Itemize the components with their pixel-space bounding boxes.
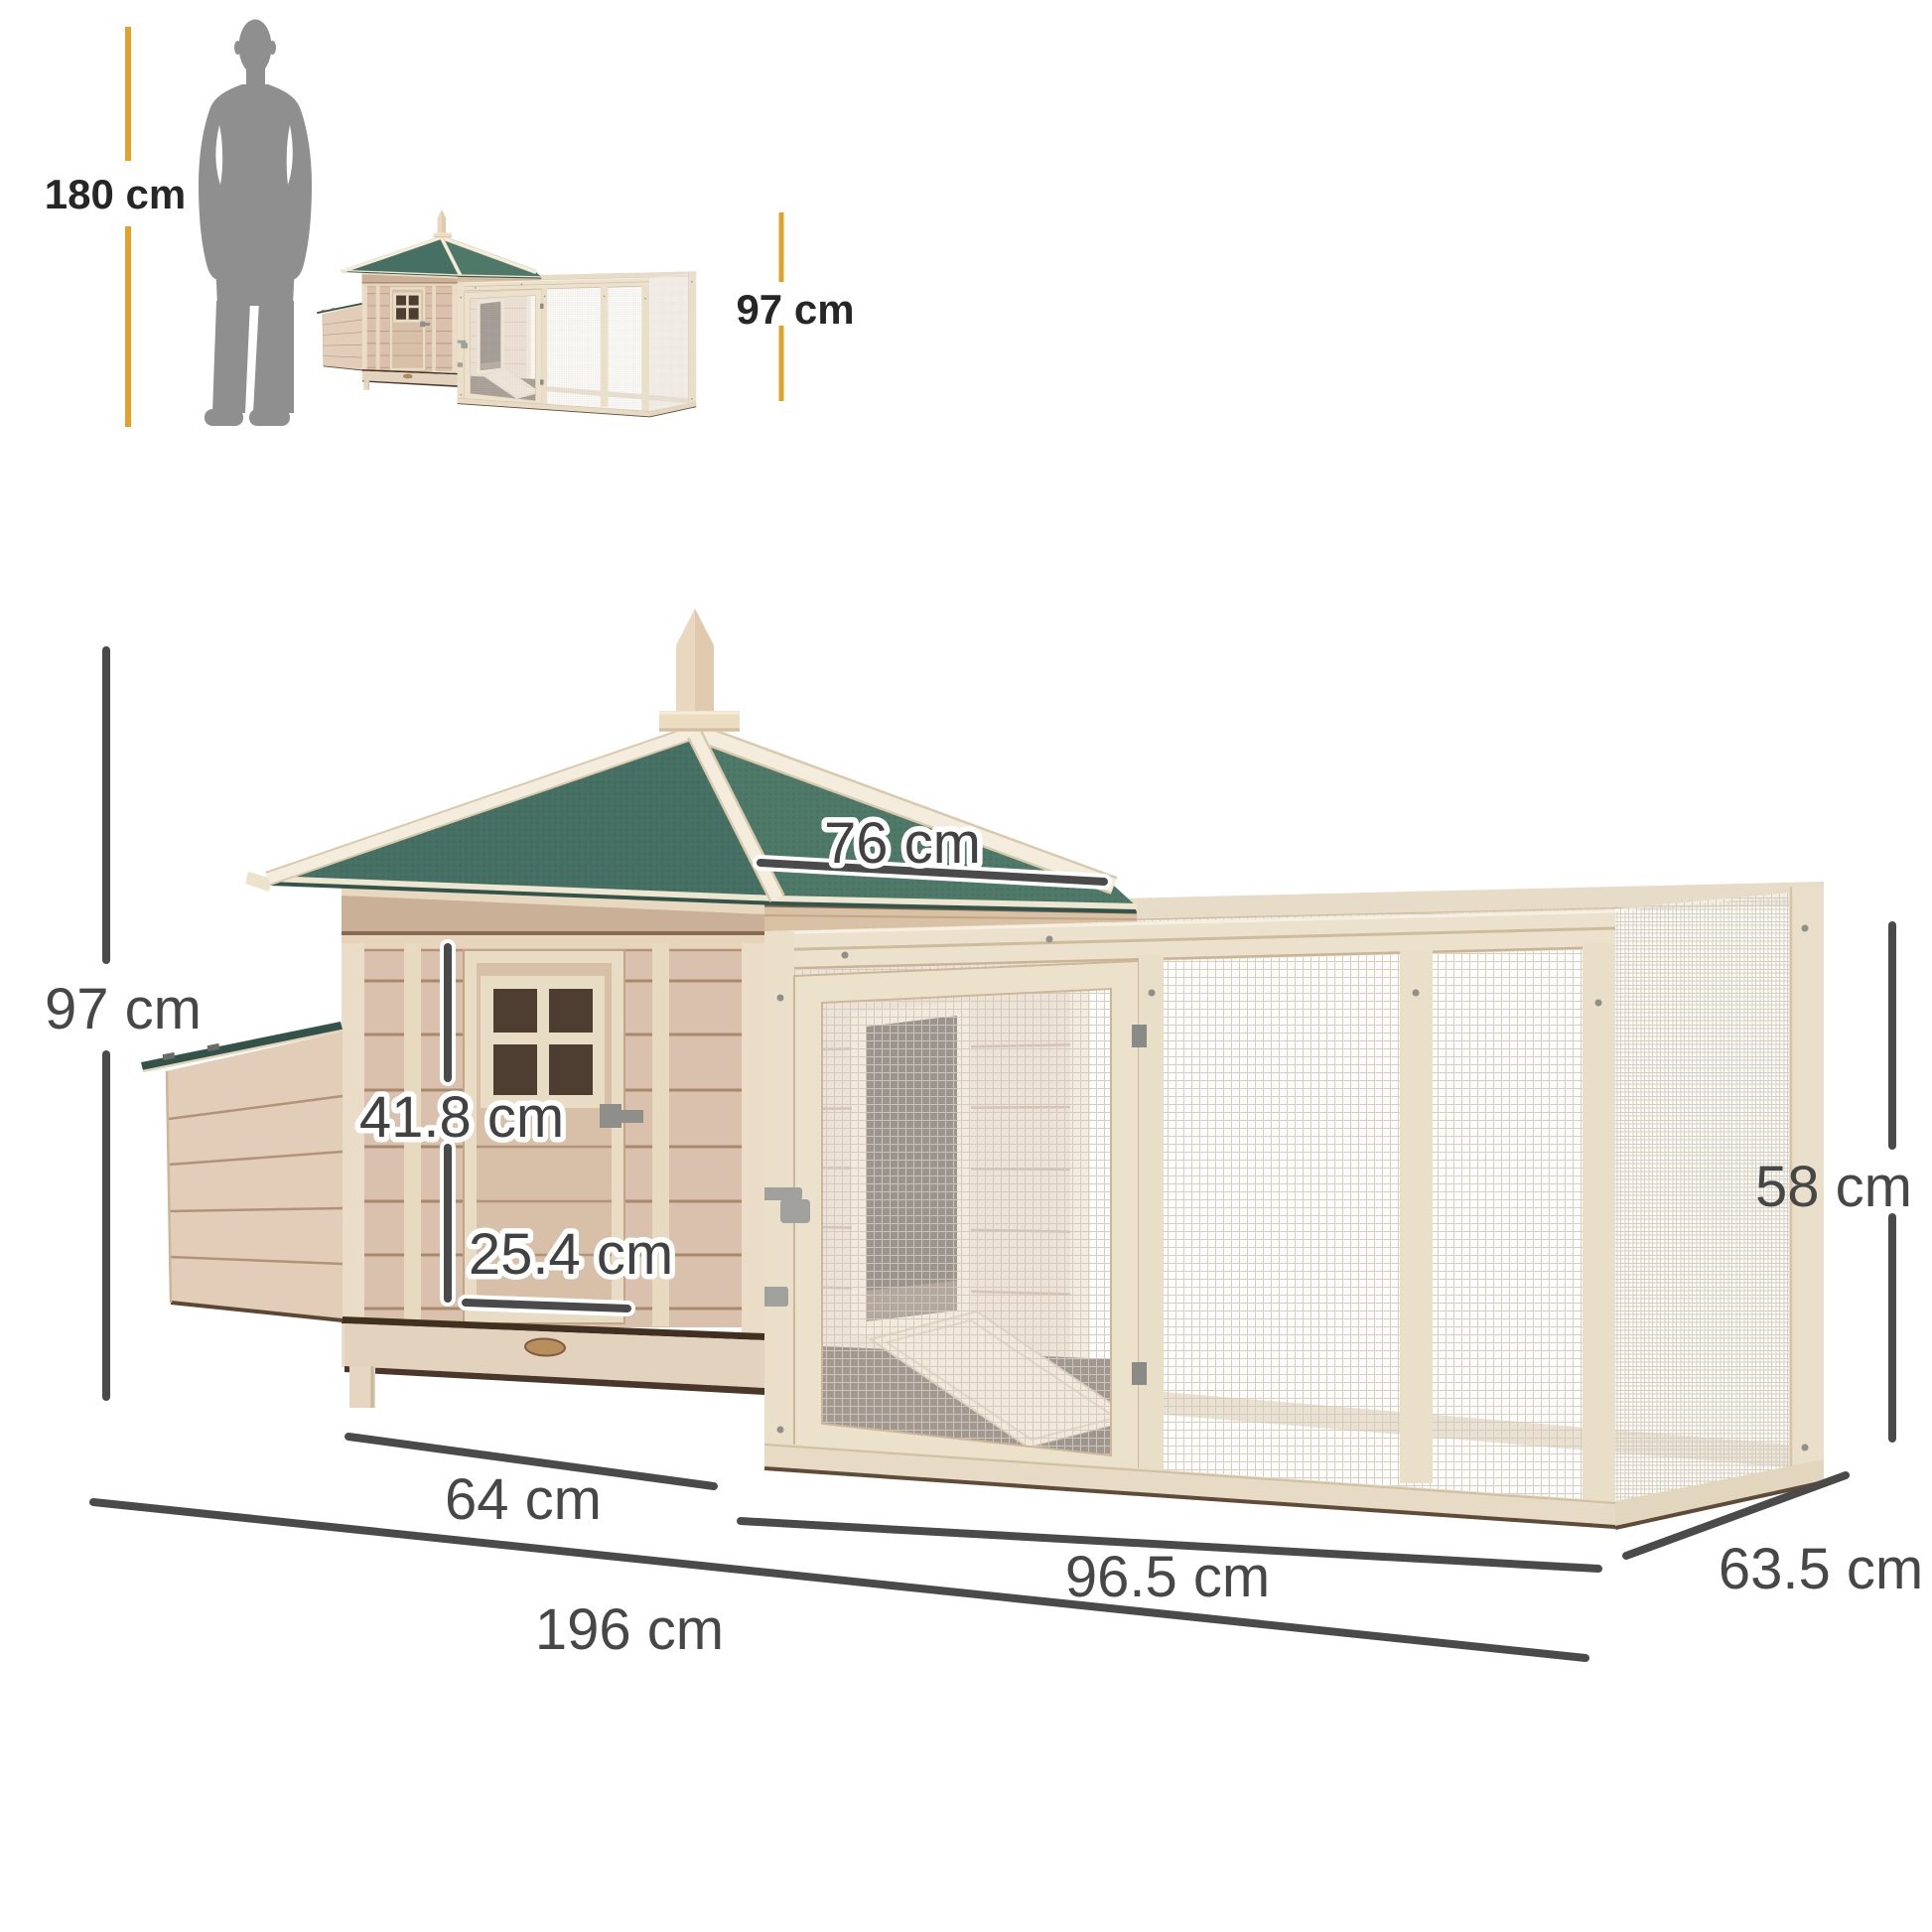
- svg-text:97 cm: 97 cm: [45, 977, 202, 1041]
- svg-text:97 cm: 97 cm: [736, 286, 854, 333]
- svg-text:96.5 cm: 96.5 cm: [1065, 1545, 1270, 1609]
- svg-text:64 cm: 64 cm: [445, 1467, 602, 1532]
- svg-text:180 cm: 180 cm: [45, 171, 186, 217]
- svg-text:196 cm: 196 cm: [535, 1597, 724, 1662]
- svg-text:25.4 cm: 25.4 cm: [469, 1222, 673, 1287]
- svg-text:76 cm: 76 cm: [824, 811, 981, 876]
- svg-text:41.8 cm: 41.8 cm: [359, 1085, 564, 1150]
- svg-text:63.5 cm: 63.5 cm: [1719, 1537, 1923, 1601]
- svg-text:58 cm: 58 cm: [1755, 1155, 1912, 1219]
